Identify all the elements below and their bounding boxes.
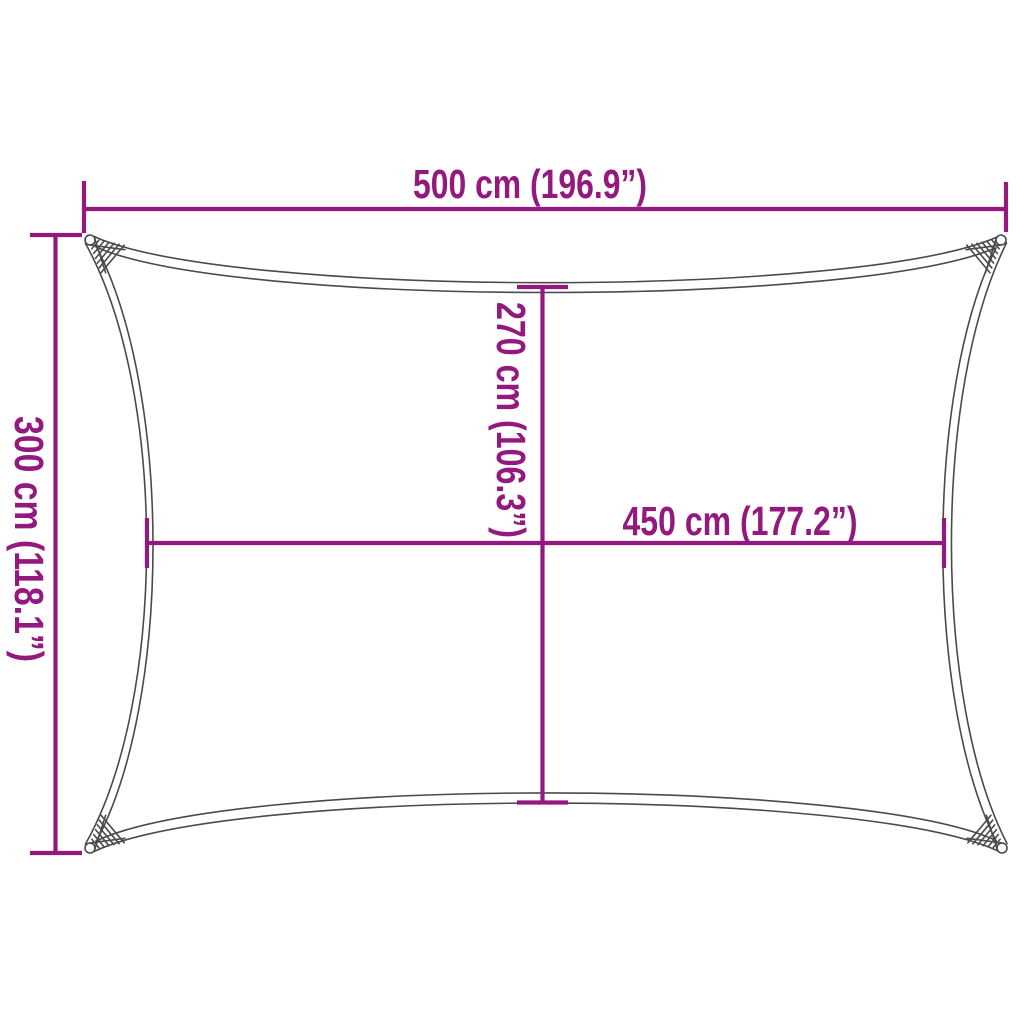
svg-text:450 cm (177.2”): 450 cm (177.2”) <box>623 498 858 544</box>
svg-text:500 cm (196.9”): 500 cm (196.9”) <box>413 161 647 207</box>
svg-text:300 cm (118.1”): 300 cm (118.1”) <box>6 416 52 662</box>
svg-text:270 cm (106.3”): 270 cm (106.3”) <box>488 302 534 538</box>
